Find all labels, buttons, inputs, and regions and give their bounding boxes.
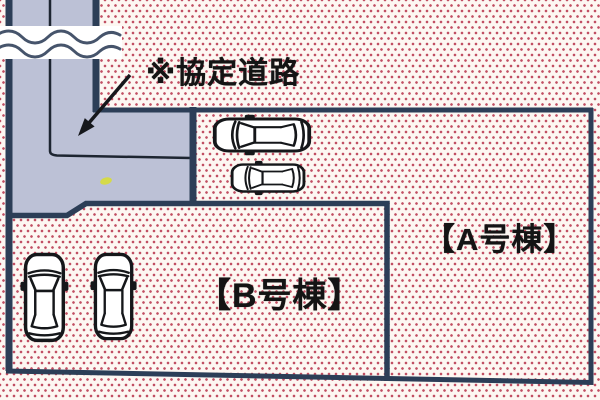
lot-b-label: 【B号棟】 [197, 279, 363, 313]
car-icon-lot-b-1 [20, 255, 68, 341]
car-icon-lot-a-2 [232, 161, 304, 195]
lot-a-label: 【A号棟】 [424, 224, 575, 255]
road-label: ※協定道路 [146, 59, 300, 89]
site-plan: ※協定道路 【A号棟】 【B号棟】 [0, 0, 600, 400]
car-icon-lot-b-2 [91, 254, 137, 338]
road-break-wave-icon [0, 26, 122, 59]
car-icon-lot-a-1 [215, 115, 309, 156]
